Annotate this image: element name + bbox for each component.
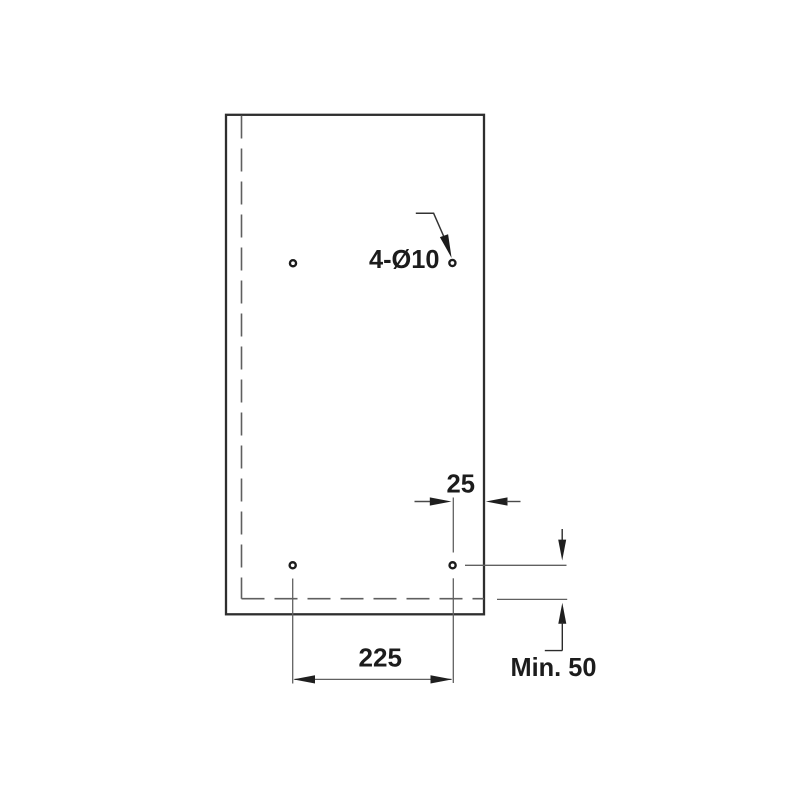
svg-text:4-Ø10: 4-Ø10: [369, 244, 440, 274]
svg-text:Min. 50: Min. 50: [511, 652, 597, 682]
svg-text:225: 225: [359, 643, 403, 673]
svg-text:25: 25: [447, 469, 476, 499]
